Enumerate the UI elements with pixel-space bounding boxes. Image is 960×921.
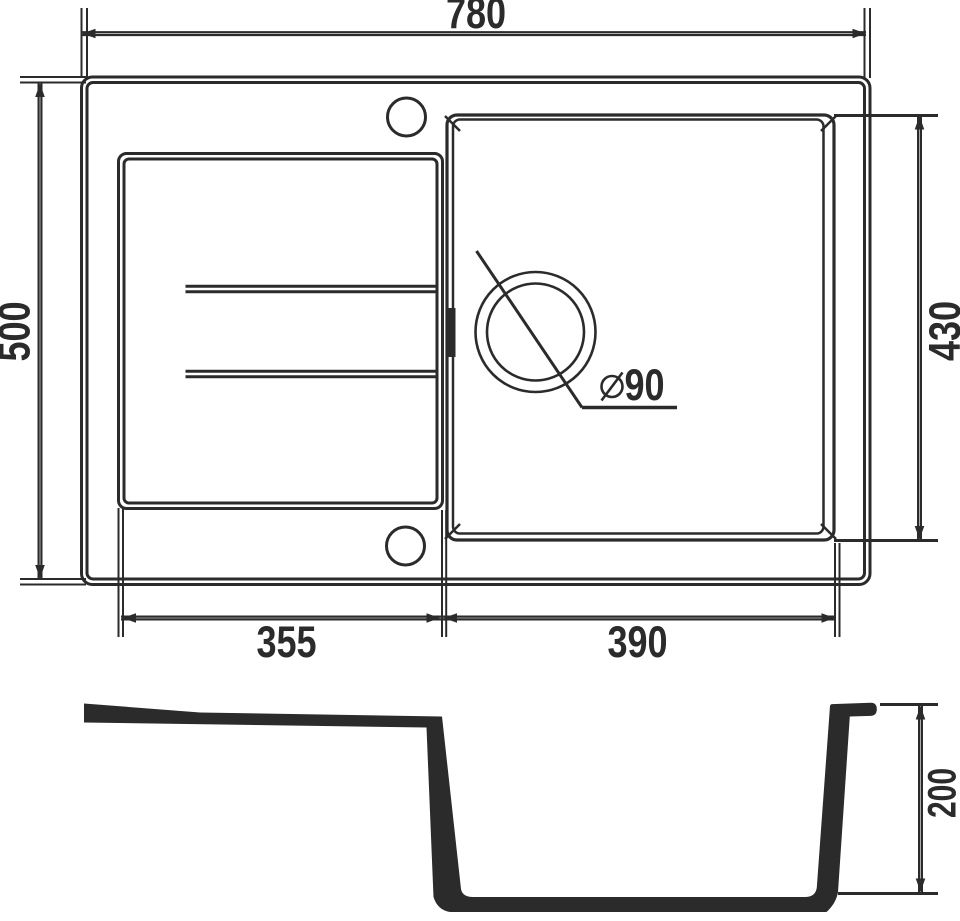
svg-text:200: 200 xyxy=(920,768,960,818)
svg-text:90: 90 xyxy=(624,359,664,410)
svg-text:390: 390 xyxy=(607,616,667,667)
svg-text:780: 780 xyxy=(446,0,506,38)
svg-text:430: 430 xyxy=(919,301,960,361)
svg-text:500: 500 xyxy=(0,301,39,361)
svg-text:355: 355 xyxy=(256,616,316,667)
